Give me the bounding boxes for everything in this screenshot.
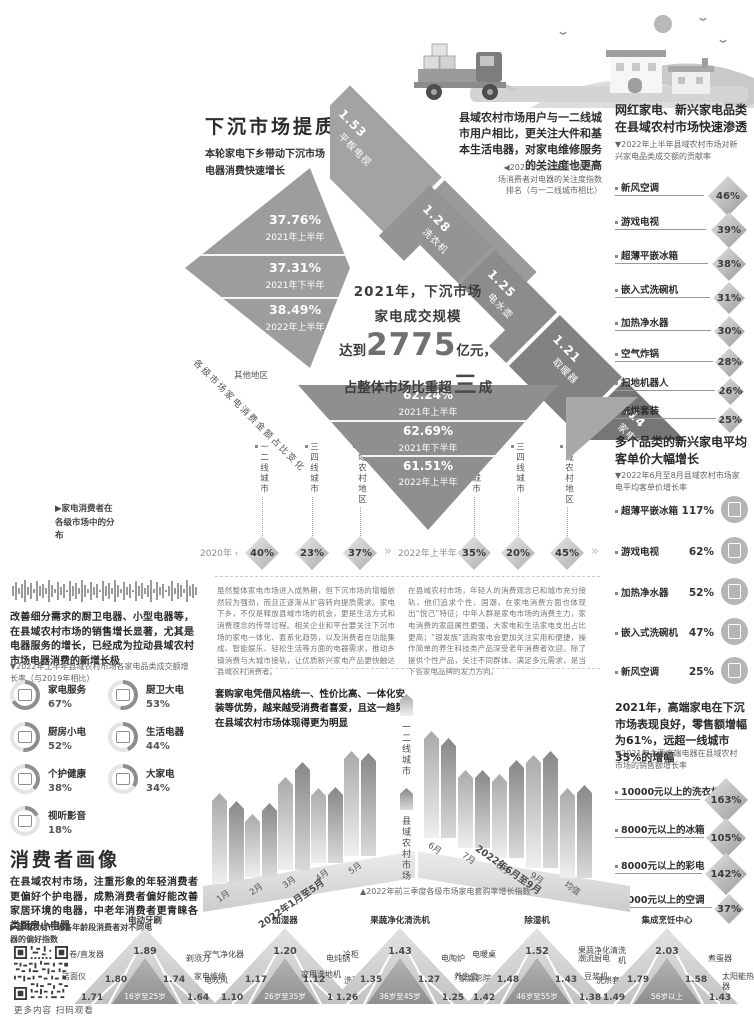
- item-value: 46%: [716, 191, 740, 202]
- distribution-diamond: 37%: [343, 536, 377, 570]
- item-value: 117%: [682, 505, 714, 517]
- tier-label: 一二线城市: [255, 442, 270, 495]
- bar: 1.66: [328, 787, 343, 863]
- pyramid-age-label: 56岁以上: [651, 991, 684, 1001]
- focus-note-caption: ◀2022年上半年县域农村市场消费者对电器的关注度指数排名（与一二线城市相比）: [498, 162, 602, 197]
- category-value: 18%: [48, 825, 86, 836]
- item-label: 新风空调: [615, 664, 659, 678]
- bar: 1.87: [441, 738, 456, 838]
- pyramid-value-left: 1.48: [497, 975, 519, 985]
- other-regions-label: 其他地区: [234, 369, 268, 381]
- pyramid-bl-label: 家用洗地机: [299, 970, 341, 980]
- pyramid-value-bl: 1.49: [603, 993, 625, 1003]
- distribution-col: 三四线城市 20%: [500, 442, 536, 570]
- bar-value: 1.81: [569, 773, 601, 783]
- highend-section-caption: ▼2021年主要高端电器在县域农村市场的销售额增长率: [615, 748, 745, 771]
- bar-value: 1.72: [221, 789, 253, 799]
- bar: 1.79: [212, 793, 227, 884]
- distribution-diamond: 20%: [501, 536, 535, 570]
- dishwasher-icon: [721, 618, 748, 645]
- bar-value: 1.94: [287, 750, 319, 760]
- item-value: 105%: [711, 833, 742, 844]
- item-value: 163%: [711, 795, 742, 806]
- bar-value: 1.87: [433, 726, 465, 736]
- category-label: 家电服务: [48, 682, 86, 696]
- headline-share-b: 超: [438, 380, 452, 396]
- item-value: 47%: [689, 627, 714, 639]
- bar: 1.68: [475, 770, 490, 848]
- essay-left: 虽然整体家电市场进入成熟期，但下沉市场的增幅依然较为强劲，而且正逐渐从扩容转向提…: [217, 585, 395, 678]
- pyramid-value-left: 1.80: [105, 975, 127, 985]
- list-item: 游戏电视 39%: [615, 202, 748, 238]
- item-value: 39%: [717, 225, 741, 236]
- category-value: 44%: [146, 741, 184, 752]
- list-item: 新风空调 46%: [615, 168, 748, 204]
- progress-ring: [10, 764, 40, 794]
- essay-right: 在县域农村市场，年轻人的消费观念已和城市充分接轨，他们追求个性、国潮，在家电消费…: [408, 585, 586, 678]
- list-item: 10000元以上的洗衣机 163%: [615, 772, 748, 808]
- progress-ring: [108, 764, 138, 794]
- pyramid-bl-label: 家电维修: [186, 972, 226, 982]
- list-item: 洗烘套装 25%: [615, 391, 748, 427]
- list-item: 8000元以上的彩电 142%: [615, 846, 748, 882]
- bar: 1.93: [424, 731, 439, 838]
- distribution-diamond: 45%: [550, 536, 584, 570]
- bar: 1.72: [229, 801, 244, 884]
- item-label: 10000元以上的洗衣机: [615, 784, 721, 798]
- legend-swatch-rural: [400, 788, 413, 810]
- distribution-value: 37%: [348, 548, 372, 559]
- pyramid-value-bl: 1.71: [81, 993, 103, 1003]
- tier-label: 三四线城市: [511, 442, 526, 495]
- kitchen-bath-icon: [116, 689, 130, 701]
- headline-line2: 家电成交规模: [330, 305, 506, 325]
- waveform-decoration: [10, 578, 200, 604]
- category-value: 53%: [146, 699, 184, 710]
- value-diamond: 25%: [717, 407, 743, 433]
- item-value: 31%: [717, 293, 741, 304]
- distribution-value: 20%: [506, 548, 530, 559]
- list-item: 游戏电视 62%: [615, 537, 748, 567]
- pyramid-age-label: 46岁至55岁: [516, 991, 558, 1001]
- distribution-caption: ▶家电消费者在各级市场中的分布: [55, 503, 121, 544]
- list-item: 8000元以上的冰箱 105%: [615, 810, 748, 846]
- category-label: 视听影音: [48, 808, 86, 822]
- item-value: 142%: [711, 869, 742, 880]
- list-item: 加热净水器 52%: [615, 578, 748, 608]
- item-label: 超薄平嵌冰箱: [615, 248, 678, 262]
- pyramid-value-bl: 1.26: [336, 993, 358, 1003]
- headline-amount: 2775: [366, 327, 456, 363]
- aov-section-caption: ▼2022年6月至8月县域农村市场家电平均客单价增长率: [615, 470, 745, 493]
- bar-value: 1.68: [467, 758, 499, 768]
- bar: 1.55: [245, 814, 260, 877]
- distribution-value: 45%: [555, 548, 579, 559]
- headline-share-a: 占整体市场比重: [344, 380, 439, 396]
- headline-share-c: 成: [479, 380, 493, 396]
- kitchen-small-icon: [18, 731, 32, 743]
- bar: 1.90: [361, 753, 376, 856]
- chevron-right-icon: »: [591, 544, 597, 559]
- distribution-diamond: 23%: [295, 536, 329, 570]
- pyramid-value-bl: 1.10: [221, 993, 243, 1003]
- item-value: 62%: [689, 546, 714, 558]
- bar-value: 1.79: [204, 781, 236, 791]
- item-value: 25%: [689, 666, 714, 678]
- pyramid-left-label: 卷/直发器: [58, 950, 104, 960]
- item-label: 嵌入式洗碗机: [615, 625, 678, 639]
- item-label: 加热净水器: [615, 585, 669, 599]
- item-label: 加热净水器: [615, 315, 669, 329]
- bar-value: 1.91: [336, 739, 368, 749]
- water-heater-icon: [721, 578, 748, 605]
- pyramid-value-top: 1.43: [388, 946, 411, 957]
- pyramid-right-label: 煮蛋器: [708, 954, 752, 964]
- age-pyramid-16-25: 电动牙刷 1.89 1.80 1.74 1.71 1.64 16岁至25岁 卷/…: [70, 914, 220, 1018]
- pyramid-age-label: 36岁至45岁: [379, 991, 421, 1001]
- category-item: 厨卫大电53%: [108, 680, 204, 720]
- bundle-caption: ▲2022年前三季度各级市场家电套购率增长指数: [360, 886, 610, 898]
- legend-label: 一二线城市: [399, 722, 412, 777]
- service-tools-icon: [18, 689, 32, 701]
- bar: 1.68: [458, 770, 473, 848]
- headline-share-three: 三: [452, 372, 479, 398]
- pyramid-age-label: 16岁至25岁: [124, 991, 166, 1001]
- pyramid-left-label: 冷柜: [313, 950, 359, 960]
- pyramid-value-right: 1.58: [685, 975, 707, 985]
- legend-label: 县域农村市场: [399, 816, 412, 882]
- category-item: 大家电34%: [108, 764, 204, 804]
- distribution-year-2022: 2022年上半年 ‹: [398, 546, 463, 559]
- headline-unit: 亿元，: [456, 343, 497, 359]
- category-item: 视听影音18%: [10, 806, 106, 846]
- pyramid-value-br: 1.64: [187, 993, 209, 1003]
- portrait-title: 消费者画像: [10, 845, 120, 872]
- infographic-page: 下沉市场提质扩容 本轮家电下乡带动下沉市场电器消费快速增长 1.53 平板电视 …: [0, 0, 754, 1024]
- list-item: 新风空调 25%: [615, 657, 748, 687]
- pyramid-top-label: 集成烹饪中心: [592, 914, 742, 926]
- category-value: 52%: [48, 741, 86, 752]
- item-label: 8000元以上的冰箱: [615, 822, 704, 836]
- category-value: 67%: [48, 699, 86, 710]
- bundle-headline: 套购家电凭借风格统一、性价比高、一体化安装等优势，越来越受消费者喜爱，且这一趋势…: [215, 688, 411, 731]
- pyramid-value-br: 1.25: [442, 993, 464, 1003]
- item-label: 8000元以上的彩电: [615, 858, 704, 872]
- pyramid-top-label: 电动牙刷: [70, 914, 220, 926]
- category-item: 生活电器44%: [108, 722, 204, 762]
- market-scale-headline: 2021年，下沉市场 家电成交规模 达到2775亿元， 占整体市场比重超三成: [330, 280, 506, 399]
- pyramid-age-label: 26岁至35岁: [264, 991, 306, 1001]
- age-pyramid-46-55: 除湿机 1.52 1.48 1.43 1.42 1.38 46岁至55岁 电暖桌…: [462, 914, 612, 1018]
- pyramid-top-label: 果蔬净化清洗机: [325, 914, 475, 926]
- pyramid-value-right: 1.27: [418, 975, 440, 985]
- bar-value: 1.90: [353, 741, 385, 751]
- list-item: 嵌入式洗碗机 47%: [615, 618, 748, 648]
- bar-value: 2.02: [535, 739, 567, 749]
- distribution-diamond: 40%: [245, 536, 279, 570]
- distribution-diamond: 35%: [457, 536, 491, 570]
- bar: 1.85: [509, 760, 524, 858]
- rural-share-period-1: 2021年上半年: [298, 405, 558, 418]
- item-label: 扫地机器人: [615, 375, 669, 389]
- distribution-value: 35%: [462, 548, 486, 559]
- progress-ring: [10, 680, 40, 710]
- air-conditioner-icon: [721, 657, 748, 684]
- bar: 1.91: [344, 751, 359, 856]
- item-label: 游戏电视: [615, 214, 659, 228]
- pyramid-value-top: 1.89: [133, 946, 156, 957]
- emerging-section-caption: ▼2022年上半年县域农村市场对新兴家电品类成交额的贡献率: [615, 139, 745, 162]
- list-item: 8000元以上的空调 37%: [615, 880, 748, 916]
- distribution-col: 一二线城市 40%: [244, 442, 280, 570]
- bar: 1.78: [560, 788, 575, 878]
- item-label: 新风空调: [615, 180, 659, 194]
- distribution-value: 23%: [300, 548, 324, 559]
- distribution-year-2020: 2020年 ‹: [200, 546, 238, 559]
- category-item: 个护健康38%: [10, 764, 106, 804]
- page-subtitle: 本轮家电下乡带动下沉市场电器消费快速增长: [205, 146, 333, 180]
- category-value: 34%: [146, 783, 175, 794]
- pyramid-value-left: 1.79: [627, 975, 649, 985]
- audio-video-icon: [18, 815, 32, 827]
- progress-ring: [10, 806, 40, 836]
- list-item: 嵌入式洗碗机 31%: [615, 270, 748, 306]
- pyramid-br-label: 太阳能热水器: [722, 972, 754, 992]
- bar: 1.98: [526, 755, 541, 868]
- distribution-col: 县域农村地区 45%: [549, 442, 585, 570]
- bar-value: 1.98: [518, 743, 550, 753]
- age-pyramid-36-45: 果蔬净化清洗机 1.43 1.35 1.27 1.26 1.25 36岁至45岁…: [325, 914, 475, 1018]
- bar: 1.73: [492, 774, 507, 858]
- pyramid-value-bl: 1.42: [473, 993, 495, 1003]
- category-item: 家电服务67%: [10, 680, 106, 720]
- item-value: 37%: [717, 904, 741, 915]
- pyramid-bl-label: 洁面仪: [46, 972, 86, 982]
- bar: 1.65: [311, 788, 326, 863]
- pyramid-value-left: 1.17: [245, 975, 267, 985]
- fridge-icon: [721, 496, 748, 523]
- pyramid-bl-label: 豆浆机: [568, 972, 608, 982]
- headline-line1: 2021年，下沉市场: [330, 280, 506, 300]
- major-appliance-icon: [116, 773, 130, 785]
- bar-value: 1.85: [501, 748, 533, 758]
- pyramid-left-label: 果蔬净化清洗机: [576, 946, 626, 966]
- item-value: 25%: [718, 415, 742, 426]
- category-label: 厨卫大电: [146, 682, 184, 696]
- item-label: 空气炸锅: [615, 346, 659, 360]
- item-value: 52%: [689, 587, 714, 599]
- game-tv-icon: [721, 537, 748, 564]
- category-item: 厨房小电52%: [10, 722, 106, 762]
- progress-ring: [10, 722, 40, 752]
- tier-label: 三四线城市: [305, 442, 320, 495]
- bar: 1.64: [262, 803, 277, 877]
- bar: 1.81: [278, 777, 293, 870]
- aov-section-title: 多个品类的新兴家电平均客单价大幅增长: [615, 434, 748, 468]
- pyramid-value-top: 2.03: [655, 946, 678, 957]
- chevron-right-icon: »: [384, 544, 390, 559]
- progress-ring: [108, 680, 138, 710]
- progress-ring: [108, 722, 138, 752]
- item-label: 嵌入式洗碗机: [615, 282, 678, 296]
- pyramid-value-top: 1.20: [273, 946, 297, 957]
- item-label: 游戏电视: [615, 544, 659, 558]
- item-value: 38%: [717, 259, 741, 270]
- living-appliance-icon: [116, 731, 130, 743]
- pyramid-value-br: 1.43: [709, 993, 731, 1003]
- pyramid-top-label: 除湿机: [462, 914, 612, 926]
- distribution-value: 40%: [250, 548, 274, 559]
- pyramid-value-left: 1.35: [360, 975, 382, 985]
- pyramid-left-label: 空气净化器: [198, 950, 244, 960]
- age-pyramid-56-plus: 集成烹饪中心 2.03 1.79 1.58 1.49 1.43 56岁以上 果蔬…: [592, 914, 742, 1018]
- pyramid-value-right: 1.74: [163, 975, 185, 985]
- bar: 1.81: [577, 785, 592, 878]
- headline-prefix: 达到: [339, 343, 366, 359]
- bar: 1.94: [295, 762, 310, 870]
- personal-care-icon: [18, 773, 32, 785]
- category-label: 个护健康: [48, 766, 86, 780]
- category-value: 38%: [48, 783, 86, 794]
- category-label: 厨房小电: [48, 724, 86, 738]
- pyramid-value-top: 1.52: [525, 946, 548, 957]
- pyramid-left-label: 电暖桌: [450, 950, 496, 960]
- category-label: 生活电器: [146, 724, 184, 738]
- list-item: 超薄平嵌冰箱 38%: [615, 236, 748, 272]
- emerging-section-title: 网红家电、新兴家电品类在县域农村市场快速渗透: [615, 102, 748, 136]
- category-label: 大家电: [146, 766, 175, 780]
- pyramid-bl-label: 养生壶: [438, 972, 478, 982]
- bar-value: 1.93: [416, 719, 448, 729]
- item-label: 超薄平嵌冰箱: [615, 503, 678, 517]
- list-item: 超薄平嵌冰箱 117%: [615, 496, 748, 526]
- tier-city-share-diamond: 37.76% 2021年上半年 37.31% 2021年下半年 38.49% 2…: [185, 168, 350, 368]
- bar: 2.02: [543, 751, 558, 868]
